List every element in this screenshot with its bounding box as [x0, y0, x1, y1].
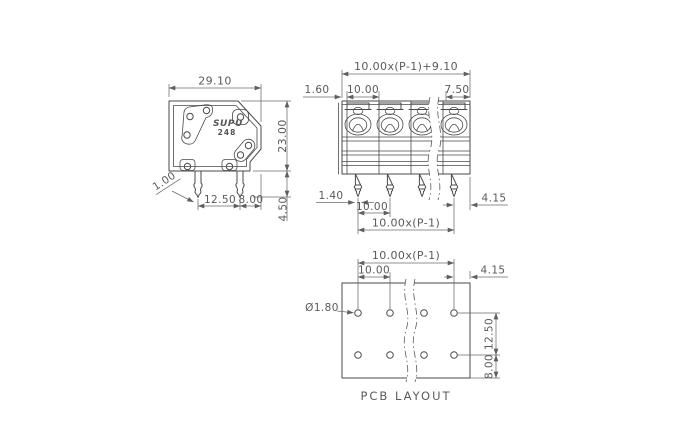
side-pin-length-dim: 4.50: [278, 197, 290, 222]
front-end-width-dim: 7.50: [445, 84, 470, 96]
pcb-bottom-offset-dim: 8.00: [484, 354, 496, 379]
front-pin-width-dim: 1.40: [319, 190, 344, 202]
side-height-dim: 23.00: [276, 119, 289, 153]
front-body-grooves: [342, 137, 470, 166]
side-pin-edge-dim: 8.00: [239, 194, 264, 206]
pcb-hole-pitch-dim: 10.00: [358, 265, 390, 277]
front-pitch-dim: 10.00: [347, 84, 379, 96]
front-pin-pitch-dim: 10.00: [356, 201, 388, 213]
terminal-block-drawing: SUPU 248 29.10 23.00 4.50 12.50 8.00 1.0…: [0, 0, 680, 440]
front-break-mask: [428, 97, 441, 200]
pcb-layout-view: 10.00x(P-1) 10.00 4.15 Ø1.80 12.50 8.00 …: [305, 249, 508, 403]
front-pin-span-dim: 10.00x(P-1): [372, 217, 440, 230]
pcb-row-spacing-dim: 12.50: [484, 318, 496, 350]
side-pin-tip-dim-group: 1.00: [149, 168, 180, 194]
side-body-outline: [169, 101, 261, 198]
front-dimensions: 10.00x(P-1)+9.10 1.60 10.00 7.50 1.40 10…: [303, 60, 508, 234]
front-view: 10.00x(P-1)+9.10 1.60 10.00 7.50 1.40 10…: [303, 60, 508, 234]
rivet-mount-right: [222, 160, 237, 171]
front-overall-width-dim: 10.00x(P-1)+9.10: [354, 60, 458, 73]
pcb-layout-caption: PCB LAYOUT: [360, 389, 451, 403]
front-pin-edge-dim: 4.15: [482, 193, 507, 205]
model-number: 248: [218, 128, 237, 137]
side-pin-spacing-dim: 12.50: [204, 194, 236, 206]
side-pin-tip-dim: 1.00: [151, 170, 178, 194]
side-dimensions: 29.10 23.00 4.50 12.50 8.00 1.00: [149, 75, 291, 222]
technical-drawing-page: SUPU 248 29.10 23.00 4.50 12.50 8.00 1.0…: [0, 0, 680, 440]
pcb-edge-offset-dim: 4.15: [481, 265, 506, 277]
pcb-break-mask: [404, 279, 417, 382]
front-body: [339, 101, 471, 197]
rivet-mount-left: [180, 160, 195, 171]
pcb-hole-diameter-dim: Ø1.80: [305, 302, 339, 314]
side-view: SUPU 248 29.10 23.00 4.50 12.50 8.00 1.0…: [149, 75, 291, 222]
front-solder-pins: [354, 174, 458, 197]
front-wall-dim: 1.60: [305, 84, 330, 96]
side-width-dim: 29.10: [198, 75, 232, 88]
pcb-dimensions: 10.00x(P-1) 10.00 4.15 Ø1.80 12.50 8.00: [305, 249, 508, 379]
wire-clamps: [345, 107, 467, 135]
terminal-caps: [345, 103, 467, 110]
pcb-hole-span-dim: 10.00x(P-1): [372, 249, 440, 262]
side-solder-pin-left: [194, 171, 202, 198]
